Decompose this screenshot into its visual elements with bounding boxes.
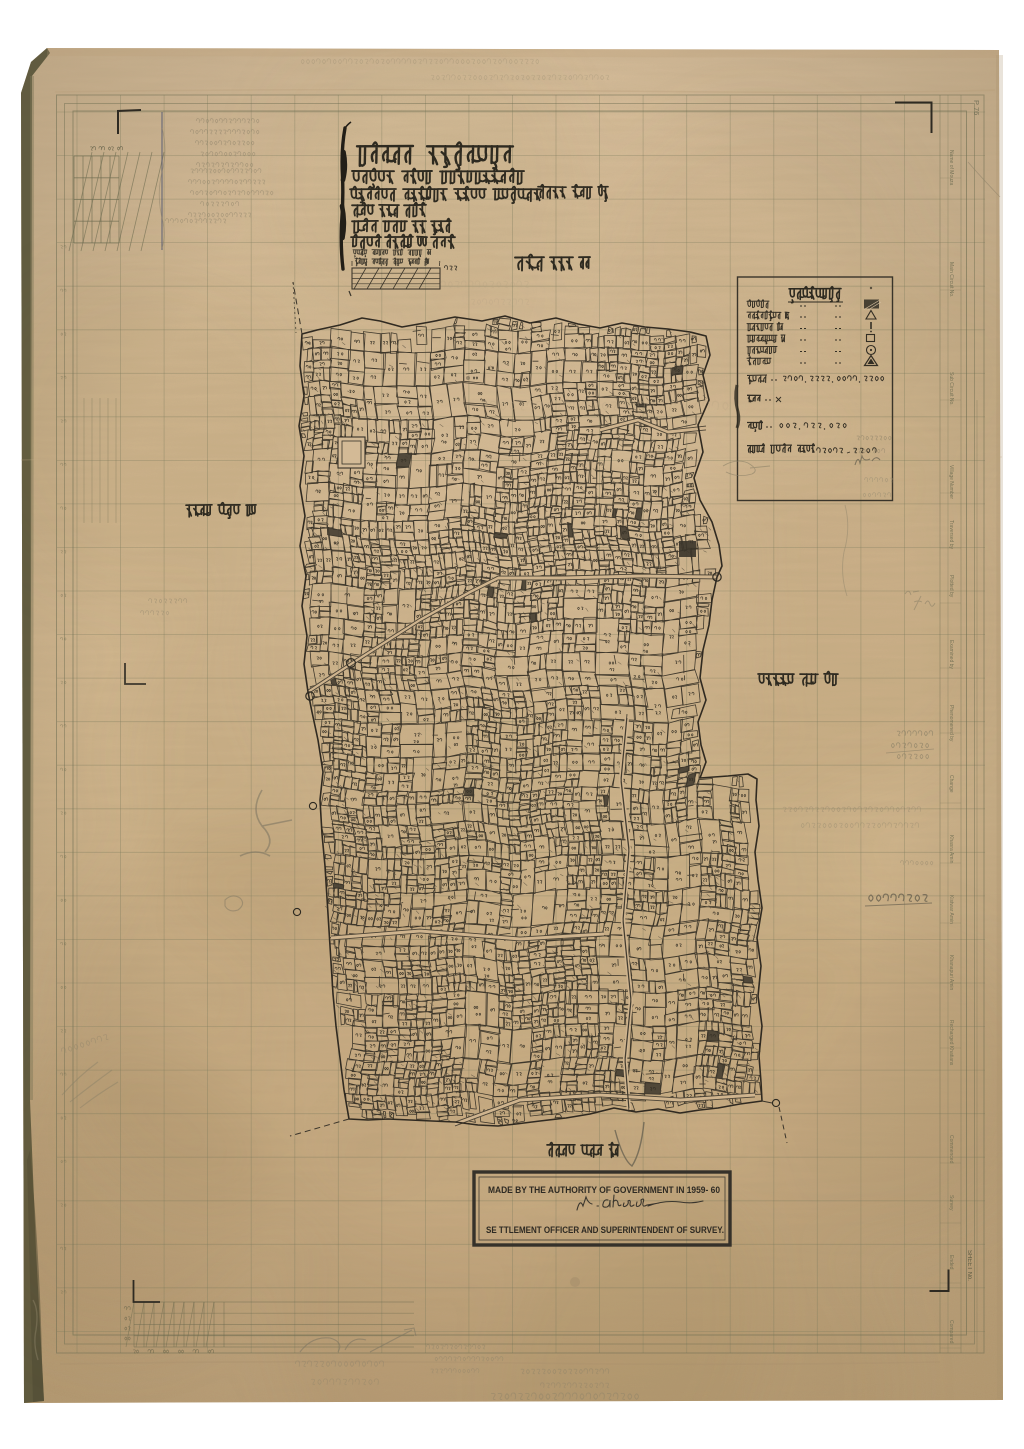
svg-text:Village Number: Village Number bbox=[948, 465, 954, 499]
svg-text:Commenced: Commenced bbox=[948, 1135, 954, 1164]
svg-text:P 76: P 76 bbox=[972, 100, 981, 115]
svg-text:Survey: Survey bbox=[948, 1195, 954, 1211]
svg-text:Ended: Ended bbox=[948, 1255, 954, 1270]
svg-text:Compared: Compared bbox=[948, 1320, 954, 1344]
svg-text:Examined by: Examined by bbox=[948, 640, 954, 669]
svg-text:Recharged Khatians: Recharged Khatians bbox=[948, 1020, 954, 1066]
svg-text:Khanapuri Amin: Khanapuri Amin bbox=[948, 955, 954, 991]
svg-text:Kistwar Amin: Kistwar Amin bbox=[948, 895, 954, 924]
svg-text:Name of Mouza: Name of Mouza bbox=[948, 150, 954, 186]
svg-text:Change: Change bbox=[948, 775, 954, 793]
svg-text:Traversed by: Traversed by bbox=[948, 520, 954, 549]
svg-text:Khasra Amin: Khasra Amin bbox=[948, 835, 954, 864]
svg-text:SHEET No.: SHEET No. bbox=[966, 1250, 972, 1281]
svg-text:SE TTLEMENT OFFICER AND SUPER: SE TTLEMENT OFFICER AND SUPERINTENDENT O… bbox=[486, 1225, 724, 1235]
svg-text:Plotted by: Plotted by bbox=[948, 575, 954, 598]
svg-text:Main Circuit No.: Main Circuit No. bbox=[948, 262, 954, 298]
svg-text:MADE BY THE AUTHORITY OF: MADE BY THE AUTHORITY OF GOVERNMENT IN 1… bbox=[488, 1185, 720, 1195]
svg-text:Phenomened by: Phenomened by bbox=[948, 705, 954, 742]
svg-text:Sub Circuit No.: Sub Circuit No. bbox=[948, 372, 954, 406]
